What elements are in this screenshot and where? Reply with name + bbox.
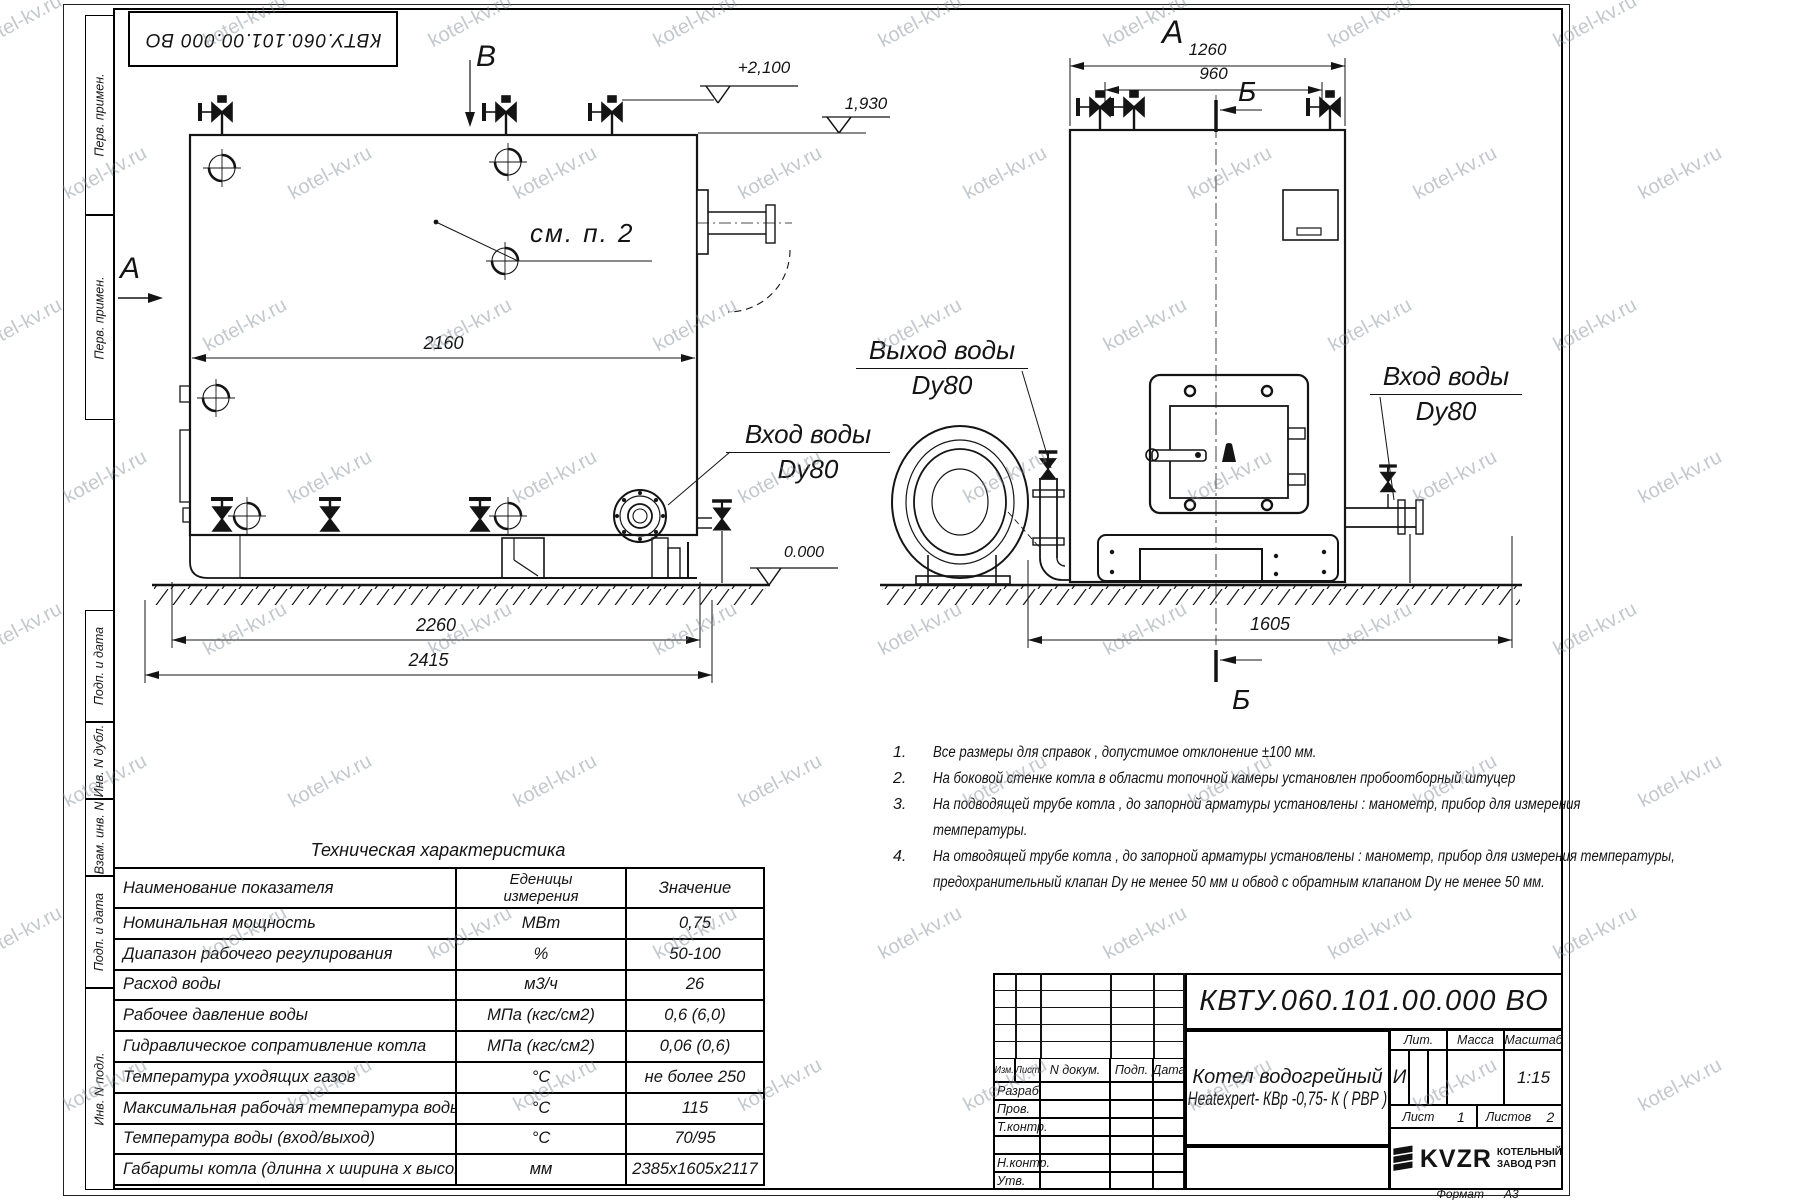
tb-sheets-cell: Листов 2: [1477, 1105, 1563, 1128]
tb-signature-space-cell: [1185, 1146, 1390, 1190]
scale-label: Масштаб: [1504, 1033, 1562, 1047]
tb-row-tkontr: Т.контр.: [993, 1118, 1040, 1136]
param-value: 115: [626, 1093, 764, 1124]
section-mark-b-left-view: В: [476, 40, 496, 74]
mass-label: Масса: [1457, 1033, 1494, 1047]
col-header-units-line1: Еденицы: [458, 871, 624, 888]
table-row: Рабочее давление воды МПа (кгс/см2) 0,6 …: [114, 1000, 764, 1031]
sheets-label: Листов: [1486, 1110, 1532, 1124]
param-name: Максимальная рабочая температура воды: [114, 1093, 456, 1124]
param-units: °С: [456, 1124, 626, 1155]
dim-960: 960: [1105, 64, 1322, 84]
tb-empty-cell: [1040, 1172, 1110, 1190]
note-text: На подводящей трубе котла , до запорной …: [933, 796, 1580, 814]
note-text: На боковой стенке котла в области топочн…: [933, 770, 1515, 788]
table-row: Максимальная рабочая температура воды °С…: [114, 1093, 764, 1124]
col-header-units-line2: измерения: [458, 888, 624, 905]
tb-empty-cell: [1153, 1172, 1185, 1190]
doc-number: КВТУ.060.101.00.000 ВО: [1199, 985, 1548, 1018]
elevation-0000: 0.000: [768, 544, 840, 562]
see-note-2-callout: см. п. 2: [530, 218, 635, 249]
tb-lit-value-cell: И: [1390, 1050, 1409, 1105]
product-name-line1: Котел водогрейный: [1192, 1066, 1382, 1089]
tb-lit-empty-2: [1428, 1050, 1447, 1105]
inlet-water-dn: Dy80: [778, 454, 839, 484]
dim-2160: 2160: [190, 333, 697, 354]
tb-scale-value-cell: 1:15: [1504, 1050, 1563, 1105]
dim-1605: 1605: [1028, 614, 1512, 635]
note-text: Все размеры для справок , допустимое отк…: [933, 744, 1316, 762]
tb-col-podp: Подп.: [1110, 1058, 1153, 1082]
param-name: Гидравлическое сопративление котла: [114, 1031, 456, 1062]
param-units: мм: [456, 1154, 626, 1185]
param-units: %: [456, 939, 626, 970]
tb-empty-cell: [1040, 1100, 1110, 1118]
tb-empty-cell: [1110, 1118, 1153, 1136]
param-value: 0,75: [626, 908, 764, 939]
note-line: 3. На подводящей трубе котла , до запорн…: [893, 796, 1558, 822]
note-line: температуры.: [893, 822, 1558, 848]
tech-table-title: Техническая характеристика: [113, 840, 763, 861]
table-row: Диапазон рабочего регулирования % 50-100: [114, 939, 764, 970]
note-text: На отводящей трубе котла , до запорной а…: [933, 848, 1675, 866]
tb-col-label: Подп.: [1115, 1063, 1148, 1077]
tb-doc-number-cell: КВТУ.060.101.00.000 ВО: [1185, 973, 1563, 1030]
format-label: Формат: [1436, 1188, 1484, 1200]
tech-table-header-row: Наименование показателя Еденицы измерени…: [114, 868, 764, 908]
param-value: 2385х1605х2117: [626, 1154, 764, 1185]
table-row: Расход воды м3/ч 26: [114, 970, 764, 1001]
tb-empty-cell: [1153, 1100, 1185, 1118]
col-header-name: Наименование показателя: [114, 868, 456, 908]
lit-value: И: [1393, 1067, 1407, 1089]
inlet-water-dn: Dy80: [1416, 396, 1477, 426]
outlet-water-text: Выход воды: [856, 334, 1028, 369]
tb-col-label: Лист: [1015, 1064, 1039, 1076]
drawing-sheet: Перв. примен. Перв. примен. Подп. и дата…: [0, 0, 1800, 1200]
param-value: 26: [626, 970, 764, 1001]
note-number: 3.: [893, 796, 933, 814]
dim-1260: 1260: [1070, 40, 1345, 60]
param-units: м3/ч: [456, 970, 626, 1001]
note-text: предохранительный клапан Dу не менее 50 …: [933, 874, 1545, 892]
tb-empty-cell: [1110, 1154, 1153, 1172]
param-name: Температура уходящих газов: [114, 1062, 456, 1093]
tb-col-data: Дата: [1153, 1058, 1185, 1082]
param-value: 70/95: [626, 1124, 764, 1155]
note-line: предохранительный клапан Dу не менее 50 …: [893, 874, 1558, 900]
tb-signature-rows: Разраб. Пров. Т.контр. Н.контр. Утв.: [993, 1082, 1185, 1190]
tb-col-izm: Изм.: [993, 1058, 1015, 1082]
tb-empty-cell: [1110, 1136, 1153, 1154]
tb-empty-cell: [1153, 1118, 1185, 1136]
view-mark-a-left: А: [120, 252, 140, 286]
param-value: 0,6 (6,0): [626, 1000, 764, 1031]
note-number: 4.: [893, 848, 933, 866]
tb-col-list: Лист: [1015, 1058, 1040, 1082]
param-units: МПа (кгс/см2): [456, 1031, 626, 1062]
outlet-water-dn: Dy80: [912, 370, 973, 400]
param-value: 50-100: [626, 939, 764, 970]
col-header-value: Значение: [626, 868, 764, 908]
note-number: 1.: [893, 744, 933, 762]
tb-empty-cell: [1040, 1082, 1110, 1100]
tb-empty-cell: [1110, 1172, 1153, 1190]
param-units: МВт: [456, 908, 626, 939]
tb-empty-cell: [1040, 1136, 1110, 1154]
sheets-value: 2: [1547, 1109, 1555, 1125]
param-name: Диапазон рабочего регулирования: [114, 939, 456, 970]
tb-product-name-cell: Котел водогрейный Heatexpert- КВр -0,75-…: [1185, 1030, 1390, 1146]
param-units: °С: [456, 1062, 626, 1093]
elevation-plus2100: +2,100: [724, 58, 804, 78]
tb-mass-header: Масса: [1447, 1030, 1504, 1050]
sheet-value: 1: [1457, 1109, 1465, 1125]
dim-2415: 2415: [145, 650, 712, 671]
param-value: не более 250: [626, 1062, 764, 1093]
note-number: 2.: [893, 770, 933, 788]
param-value: 0,06 (0,6): [626, 1031, 764, 1062]
left-view: [118, 60, 890, 683]
tb-lit-empty-1: [1409, 1050, 1428, 1105]
company-name-line1: КОТЕЛЬНЫЙ: [1497, 1147, 1562, 1159]
tb-empty-cell: [1153, 1082, 1185, 1100]
tb-empty-cell: [1153, 1136, 1185, 1154]
tb-empty-cell: [1040, 1154, 1110, 1172]
note-line: 4. На отводящей трубе котла , до запорно…: [893, 848, 1558, 874]
param-name: Габариты котла (длинна х ширина х высота…: [114, 1154, 456, 1185]
param-name: Номинальная мощность: [114, 908, 456, 939]
format-value: А3: [1504, 1188, 1519, 1200]
col-header-units: Еденицы измерения: [456, 868, 626, 908]
scale-value: 1:15: [1517, 1068, 1550, 1088]
tb-mass-value-cell: [1447, 1050, 1504, 1105]
tb-scale-header: Масштаб: [1504, 1030, 1563, 1050]
company-logo-text: KVZR: [1420, 1145, 1492, 1174]
notes-block: 1. Все размеры для справок , допустимое …: [893, 744, 1558, 900]
inlet-water-label-right-view: Вход воды Dy80: [1370, 360, 1522, 427]
inlet-water-label-left-view: Вход воды Dy80: [726, 418, 890, 485]
elevation-1930: 1,930: [832, 94, 900, 114]
tech-table: Наименование показателя Еденицы измерени…: [113, 867, 765, 1186]
tb-empty-cell: [1110, 1100, 1153, 1118]
tb-row-prov: Пров.: [993, 1100, 1040, 1118]
tech-table-block: Техническая характеристика Наименование …: [113, 840, 763, 1186]
table-row: Гидравлическое сопративление котла МПа (…: [114, 1031, 764, 1062]
tb-col-label: Изм.: [994, 1064, 1013, 1076]
table-row: Температура воды (вход/выход) °С 70/95: [114, 1124, 764, 1155]
tb-empty-cell: [1110, 1082, 1153, 1100]
inlet-water-text: Вход воды: [726, 418, 890, 453]
tb-row-utv: Утв.: [993, 1172, 1040, 1190]
tb-col-ndokum: N докум.: [1040, 1058, 1110, 1082]
section-mark-b-top: Б: [1238, 76, 1256, 108]
param-units: МПа (кгс/см2): [456, 1000, 626, 1031]
table-row: Номинальная мощность МВт 0,75: [114, 908, 764, 939]
note-text: температуры.: [933, 822, 1027, 840]
outlet-water-label: Выход воды Dy80: [856, 334, 1028, 401]
param-name: Рабочее давление воды: [114, 1000, 456, 1031]
tb-sheet-cell: Лист 1: [1390, 1105, 1477, 1128]
table-row: Температура уходящих газов °С не более 2…: [114, 1062, 764, 1093]
sheet-label: Лист: [1402, 1110, 1434, 1124]
tb-empty-cell: [1153, 1154, 1185, 1172]
product-name-line2: Heatexpert- КВр -0,75- К ( РВР ): [1188, 1089, 1387, 1111]
tb-col-label: Дата: [1153, 1063, 1186, 1077]
tb-col-label: N докум.: [1050, 1063, 1101, 1077]
kvzr-coil-icon: [1391, 1141, 1415, 1177]
inlet-water-text: Вход воды: [1370, 360, 1522, 395]
tb-row-blank: [993, 1136, 1040, 1154]
format-note: Формат А3: [1392, 1188, 1563, 1200]
table-row: Габариты котла (длинна х ширина х высота…: [114, 1154, 764, 1185]
note-line: 1. Все размеры для справок , допустимое …: [893, 744, 1558, 770]
dim-2260: 2260: [172, 615, 700, 636]
param-units: °С: [456, 1093, 626, 1124]
tb-row-nkontr: Н.контр.: [993, 1154, 1040, 1172]
tb-company-cell: KVZR КОТЕЛЬНЫЙ ЗАВОД РЭП: [1390, 1128, 1563, 1190]
company-name-line2: ЗАВОД РЭП: [1497, 1159, 1562, 1171]
tb-row-razrab: Разраб.: [993, 1082, 1040, 1100]
note-line: 2. На боковой стенке котла в области топ…: [893, 770, 1558, 796]
section-mark-b-bottom: Б: [1232, 684, 1250, 716]
tb-empty-cell: [1040, 1118, 1110, 1136]
lit-label: Лит.: [1404, 1033, 1433, 1047]
param-name: Расход воды: [114, 970, 456, 1001]
param-name: Температура воды (вход/выход): [114, 1124, 456, 1155]
tb-lit-header: Лит.: [1390, 1030, 1447, 1050]
